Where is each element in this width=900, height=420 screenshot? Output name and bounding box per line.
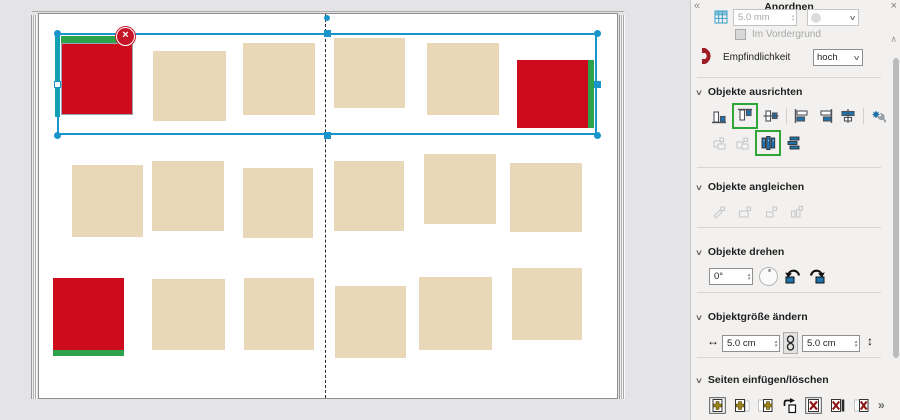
divider <box>697 167 881 168</box>
object-height-input[interactable]: 5.0 cm ▴▾ <box>802 335 860 352</box>
anordnen-panel: « Anordnen × ∧ 5.0 mm ▴▾ ∨ Im Vordergrun… <box>690 0 900 420</box>
magnet-icon[interactable] <box>699 46 717 69</box>
rotate-right-button[interactable] <box>807 266 827 286</box>
image-placeholder[interactable] <box>335 286 406 358</box>
section-header-rotate[interactable]: ∨ Objekte drehen <box>696 246 784 258</box>
application-window: × « Anordnen × ∧ 5.0 mm ▴▾ ∨ Im Vordergr… <box>0 0 900 420</box>
image-placeholder[interactable] <box>419 277 492 350</box>
handle-top-middle-handle[interactable] <box>324 30 331 37</box>
handle-middle-left-handle[interactable] <box>54 81 61 88</box>
match-height-button[interactable] <box>787 202 807 222</box>
link-dimensions-toggle[interactable] <box>783 332 798 354</box>
foreground-checkbox[interactable] <box>735 29 746 40</box>
distribute-vertical-button[interactable] <box>784 133 804 153</box>
section-title: Objekte drehen <box>708 246 784 258</box>
match-size-button[interactable] <box>735 202 755 222</box>
object-width-input[interactable]: 5.0 cm ▴▾ <box>722 335 780 352</box>
editor-canvas[interactable]: × <box>0 0 690 420</box>
image-placeholder[interactable] <box>152 279 225 350</box>
section-header-match[interactable]: ∨ Objekte angleichen <box>696 181 804 193</box>
divider <box>697 292 881 293</box>
sensitivity-label: Empfindlichkeit <box>723 52 790 63</box>
chevron-down-icon: ∨ <box>849 14 857 22</box>
divider <box>697 357 881 358</box>
align-middle-button[interactable] <box>761 106 781 126</box>
delete-selection-badge[interactable]: × <box>116 27 135 46</box>
align-bottom-button[interactable] <box>709 106 729 126</box>
handle-top-right-handle[interactable] <box>594 30 601 37</box>
delete-page-boxed-button[interactable] <box>803 395 823 415</box>
handle-bottom-right-handle[interactable] <box>594 132 601 139</box>
spine-top-handle[interactable] <box>324 15 330 21</box>
image-placeholder[interactable] <box>152 161 224 231</box>
align-settings-button[interactable] <box>869 106 889 126</box>
spinner-arrows-icon[interactable]: ▴▾ <box>774 340 777 348</box>
handle-top-left-handle[interactable] <box>54 30 61 37</box>
rotation-angle-input[interactable]: 0° ▴▾ <box>709 268 753 285</box>
snap-indicator-bottom <box>53 350 124 356</box>
grid-spacing-input[interactable]: 5.0 mm ▴▾ <box>733 9 797 26</box>
spinner-arrows-icon[interactable]: ▴▾ <box>791 14 794 22</box>
image-placeholder[interactable] <box>334 161 404 231</box>
section-chevron-icon[interactable]: ∨ <box>695 248 703 257</box>
selection-left-edge-highlight <box>55 33 60 117</box>
section-chevron-icon[interactable]: ∨ <box>695 88 703 97</box>
align-top-button[interactable] <box>735 106 755 126</box>
highlight-box-green <box>732 103 758 129</box>
section-title: Objekte angleichen <box>708 181 804 193</box>
insert-page-boxed-button[interactable] <box>707 395 727 415</box>
insert-page-after-button[interactable] <box>731 395 751 415</box>
image-placeholder[interactable] <box>244 278 314 350</box>
width-arrow-icon: ↔ <box>707 334 719 348</box>
selection-rectangle[interactable] <box>57 33 597 135</box>
align-group-top-button[interactable] <box>732 133 752 153</box>
height-arrow-icon: ↕ <box>867 334 873 348</box>
red-image-frame[interactable] <box>53 278 124 350</box>
delete-page-button[interactable] <box>827 395 847 415</box>
chevron-down-icon: ∨ <box>853 54 861 62</box>
spinner-arrows-icon[interactable]: ▴▾ <box>747 273 750 281</box>
handle-middle-right-handle[interactable] <box>594 81 601 88</box>
image-placeholder[interactable] <box>72 165 143 237</box>
scrollbar-up-icon[interactable]: ∧ <box>890 34 897 45</box>
move-page-button[interactable] <box>779 395 799 415</box>
distribute-horizontal-button[interactable] <box>758 133 778 153</box>
sensitivity-dropdown[interactable]: hoch ∨ <box>813 49 863 66</box>
rotate-left-button[interactable] <box>783 266 803 286</box>
insert-pages-button[interactable] <box>755 395 775 415</box>
delete-pages-button[interactable] <box>851 395 871 415</box>
align-center-button[interactable] <box>838 106 858 126</box>
page-stack-top-edge <box>32 11 624 12</box>
match-width-button[interactable] <box>761 202 781 222</box>
section-chevron-icon[interactable]: ∨ <box>695 313 703 322</box>
image-placeholder[interactable] <box>243 168 313 238</box>
section-chevron-icon[interactable]: ∨ <box>695 183 703 192</box>
section-chevron-icon[interactable]: ∨ <box>695 376 703 385</box>
divider <box>697 227 881 228</box>
section-title: Seiten einfügen/löschen <box>708 374 829 386</box>
page-stack-right-edge <box>619 15 625 399</box>
align-group-left-button[interactable] <box>709 133 729 153</box>
color-swatch-icon <box>811 13 821 23</box>
section-header-align[interactable]: ∨ Objekte ausrichten <box>696 86 802 98</box>
handle-bottom-middle-handle[interactable] <box>324 132 331 139</box>
grid-color-dropdown[interactable]: ∨ <box>807 9 859 26</box>
page-stack-left-edge <box>31 15 37 399</box>
section-title: Objekte ausrichten <box>708 86 803 98</box>
scrollbar-thumb[interactable] <box>893 58 899 358</box>
rotation-dial[interactable] <box>759 267 778 286</box>
foreground-checkbox-label: Im Vordergrund <box>752 29 821 40</box>
section-header-pages[interactable]: ∨ Seiten einfügen/löschen <box>696 374 829 386</box>
grid-icon <box>714 10 728 27</box>
image-placeholder[interactable] <box>510 163 582 232</box>
section-title: Objektgröße ändern <box>708 311 808 323</box>
section-header-resize[interactable]: ∨ Objektgröße ändern <box>696 311 808 323</box>
spinner-arrows-icon[interactable]: ▴▾ <box>854 340 857 348</box>
image-placeholder[interactable] <box>424 154 496 224</box>
highlight-box-green <box>755 130 781 156</box>
align-right-button[interactable] <box>815 106 835 126</box>
handle-bottom-left-handle[interactable] <box>54 132 61 139</box>
panel-close-icon[interactable]: × <box>891 0 897 12</box>
more-page-actions-button[interactable]: » <box>878 398 885 412</box>
align-left-button[interactable] <box>792 106 812 126</box>
separator <box>786 108 787 124</box>
divider <box>697 77 881 78</box>
chain-icon <box>786 335 795 351</box>
match-style-button[interactable] <box>709 202 729 222</box>
image-placeholder[interactable] <box>512 268 582 340</box>
separator <box>863 108 864 124</box>
